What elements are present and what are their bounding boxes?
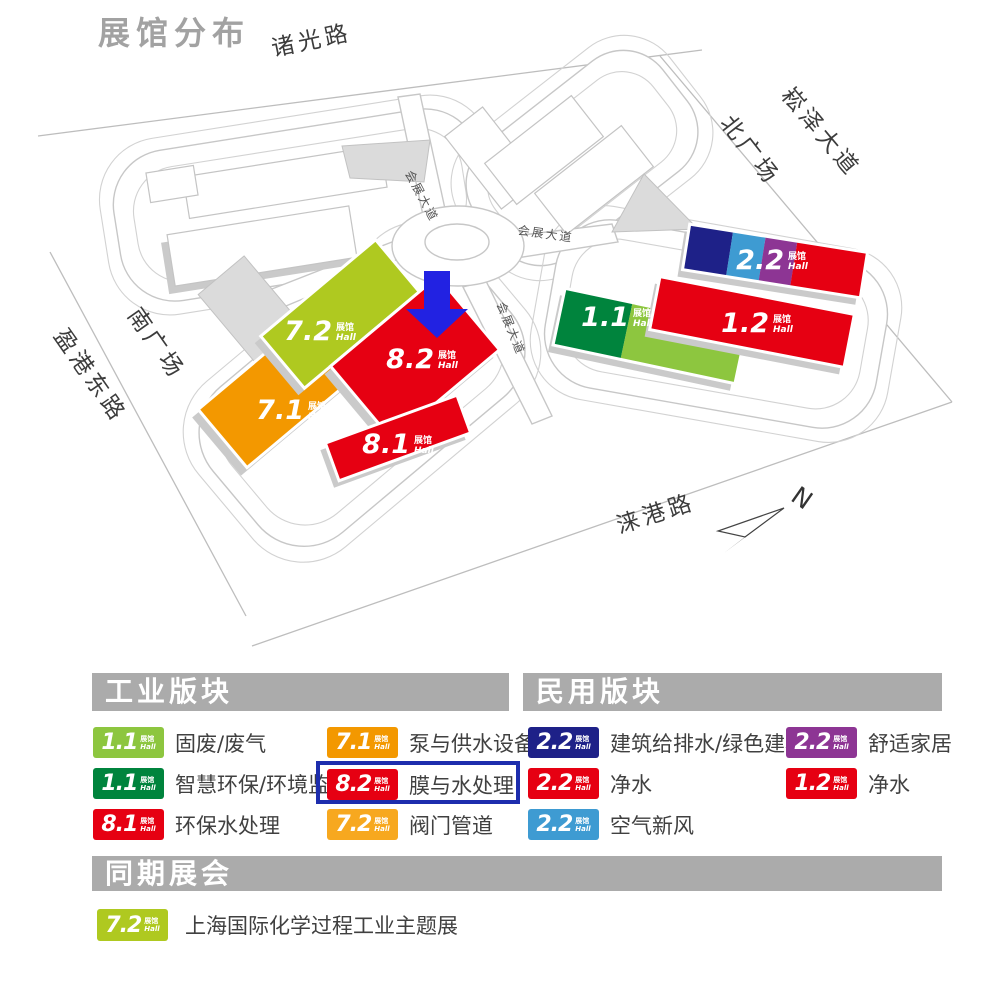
hall-badge-8-1: 8.1 展馆Hall bbox=[93, 809, 164, 840]
legend-label: 空气新风 bbox=[610, 810, 694, 840]
road-label-zhuguang: 诸光路 bbox=[269, 20, 354, 62]
legend-item-solid-waste: 1.1 展馆Hall 固废/废气 bbox=[93, 727, 266, 758]
legend-label: 净水 bbox=[868, 769, 910, 799]
legend-label: 阀门管道 bbox=[409, 810, 493, 840]
legend-label: 固废/废气 bbox=[175, 728, 266, 758]
svg-text:展馆: 展馆 bbox=[438, 349, 456, 361]
svg-text:展馆: 展馆 bbox=[773, 313, 791, 325]
svg-text:Hall: Hall bbox=[773, 325, 794, 335]
legend-item-fresh-air: 2.2 展馆Hall 空气新风 bbox=[528, 809, 694, 840]
legend-label: 上海国际化学过程工业主题展 bbox=[185, 910, 458, 940]
section-header-civil: 民用版块 bbox=[523, 673, 942, 711]
venue-map: 7.2 展馆 Hall 7.1 展馆 Hall 8.2 展馆 Hall 8.1 … bbox=[0, 0, 990, 660]
legend-item-env-water-treatment: 8.1 展馆Hall 环保水处理 bbox=[93, 809, 280, 840]
legend-item-pumps-water-supply: 7.1 展馆Hall 泵与供水设备 bbox=[327, 727, 535, 758]
hall-badge-2-2: 2.2 展馆Hall bbox=[528, 727, 599, 758]
svg-text:Hall: Hall bbox=[336, 333, 357, 343]
poster-page: 展馆分布 bbox=[0, 0, 990, 990]
svg-text:Hall: Hall bbox=[633, 319, 654, 329]
svg-text:1.2: 1.2 bbox=[721, 308, 769, 339]
svg-text:Hall: Hall bbox=[308, 412, 329, 422]
svg-text:展馆: 展馆 bbox=[336, 321, 354, 333]
legend-label: 建筑给排水/绿色建材 bbox=[610, 728, 806, 758]
hall-badge-2-2: 2.2 展馆Hall bbox=[786, 727, 857, 758]
legend-label: 膜与水处理 bbox=[409, 770, 514, 800]
hall-badge-1-1: 1.1 展馆Hall bbox=[93, 768, 164, 799]
section-header-concurrent: 同期展会 bbox=[92, 856, 942, 891]
svg-text:展馆: 展馆 bbox=[788, 250, 806, 262]
legend-item-building-drainage: 2.2 展馆Hall 建筑给排水/绿色建材 bbox=[528, 727, 806, 758]
road-label-laigang: 涞港路 bbox=[613, 489, 698, 539]
hall-badge-8-2: 8.2 展馆Hall bbox=[327, 769, 398, 800]
svg-text:7.1: 7.1 bbox=[256, 395, 304, 426]
hall-badge-7-2: 7.2 展馆Hall bbox=[327, 809, 398, 840]
central-ring bbox=[392, 206, 524, 286]
svg-text:2.2: 2.2 bbox=[736, 245, 784, 276]
area-label-south-square: 南广场 bbox=[122, 303, 190, 384]
legend-label: 环保水处理 bbox=[175, 810, 280, 840]
legend-item-valves-pipes: 7.2 展馆Hall 阀门管道 bbox=[327, 809, 493, 840]
section-header-industrial: 工业版块 bbox=[92, 673, 509, 711]
hall-badge-2-2: 2.2 展馆Hall bbox=[528, 768, 599, 799]
road-label-yinggang: 盈港东路 bbox=[48, 324, 131, 427]
legend-item-chemical-process-expo: 7.2 展馆Hall 上海国际化学过程工业主题展 bbox=[97, 909, 458, 941]
svg-text:展馆: 展馆 bbox=[414, 434, 432, 446]
hall-badge-7-2: 7.2 展馆Hall bbox=[97, 909, 168, 941]
hall-badge-1-1: 1.1 展馆Hall bbox=[93, 727, 164, 758]
area-label-north-square: 北广场 bbox=[714, 111, 784, 191]
compass: N bbox=[718, 481, 818, 553]
legend-label: 泵与供水设备 bbox=[409, 728, 535, 758]
svg-text:Hall: Hall bbox=[438, 361, 459, 371]
legend-item-membrane-water: 8.2 展馆Hall 膜与水处理 bbox=[327, 769, 514, 800]
road-label-songze: 崧泽大道 bbox=[776, 83, 865, 182]
compass-n-label: N bbox=[786, 481, 818, 515]
svg-text:展馆: 展馆 bbox=[633, 307, 651, 319]
svg-text:Hall: Hall bbox=[414, 446, 435, 456]
svg-text:1.1: 1.1 bbox=[581, 302, 629, 333]
hall-badge-2-2: 2.2 展馆Hall bbox=[528, 809, 599, 840]
legend-label: 舒适家居 bbox=[868, 728, 952, 758]
svg-text:Hall: Hall bbox=[788, 262, 809, 272]
hall-badge-1-2: 1.2 展馆Hall bbox=[786, 768, 857, 799]
svg-text:8.2: 8.2 bbox=[386, 344, 434, 375]
legend-item-smart-environment: 1.1 展馆Hall 智慧环保/环境监测 bbox=[93, 768, 350, 799]
svg-text:8.1: 8.1 bbox=[362, 429, 410, 460]
legend-label: 净水 bbox=[610, 769, 652, 799]
svg-text:展馆: 展馆 bbox=[308, 400, 326, 412]
hall-badge-7-1: 7.1 展馆Hall bbox=[327, 727, 398, 758]
legend-item-clean-water-12: 1.2 展馆Hall 净水 bbox=[786, 768, 910, 799]
legend-item-comfort-home: 2.2 展馆Hall 舒适家居 bbox=[786, 727, 952, 758]
legend-item-clean-water-22: 2.2 展馆Hall 净水 bbox=[528, 768, 652, 799]
svg-text:7.2: 7.2 bbox=[284, 316, 332, 347]
